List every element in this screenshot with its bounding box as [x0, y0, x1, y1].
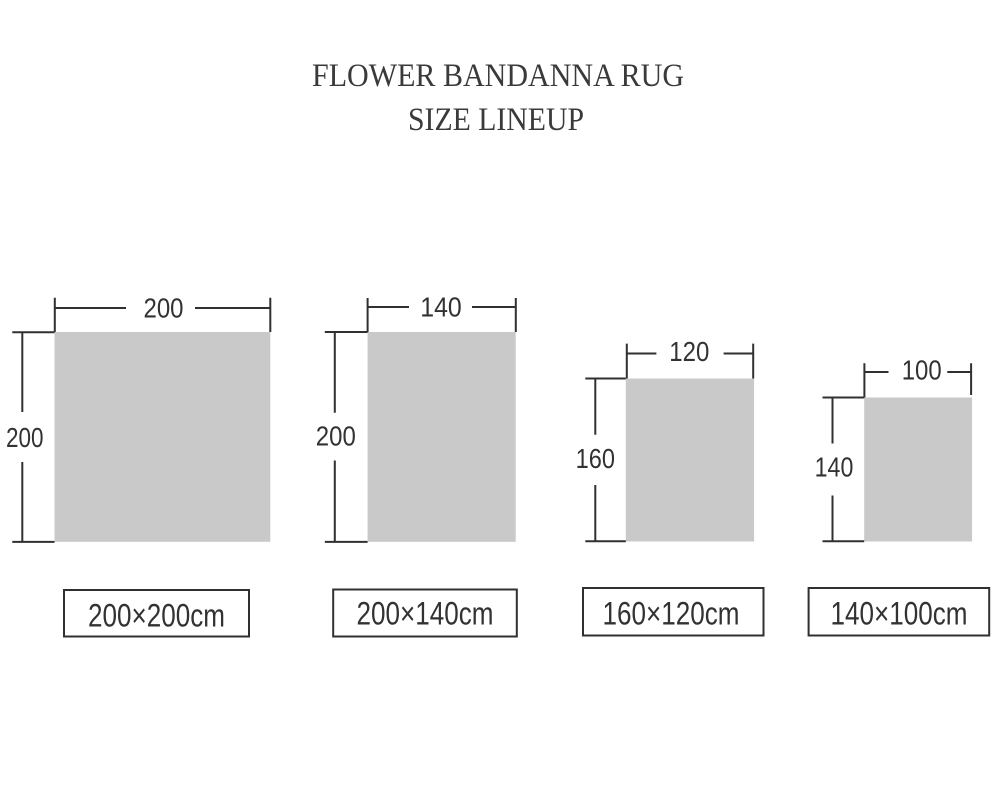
- svg-text:200×200cm: 200×200cm: [88, 597, 225, 633]
- svg-text:200: 200: [316, 421, 356, 452]
- svg-text:200: 200: [144, 293, 184, 324]
- svg-text:SIZE LINEUP: SIZE LINEUP: [408, 102, 584, 138]
- svg-text:160: 160: [576, 443, 615, 474]
- svg-text:140×100cm: 140×100cm: [831, 595, 968, 631]
- svg-text:200×140cm: 200×140cm: [357, 596, 494, 632]
- svg-text:200: 200: [6, 422, 44, 453]
- svg-text:FLOWER BANDANNA RUG: FLOWER BANDANNA RUG: [312, 58, 684, 94]
- svg-text:140: 140: [815, 452, 854, 483]
- svg-text:160×120cm: 160×120cm: [603, 595, 740, 631]
- svg-text:100: 100: [902, 355, 942, 386]
- svg-text:120: 120: [669, 336, 709, 367]
- svg-text:140: 140: [420, 292, 462, 323]
